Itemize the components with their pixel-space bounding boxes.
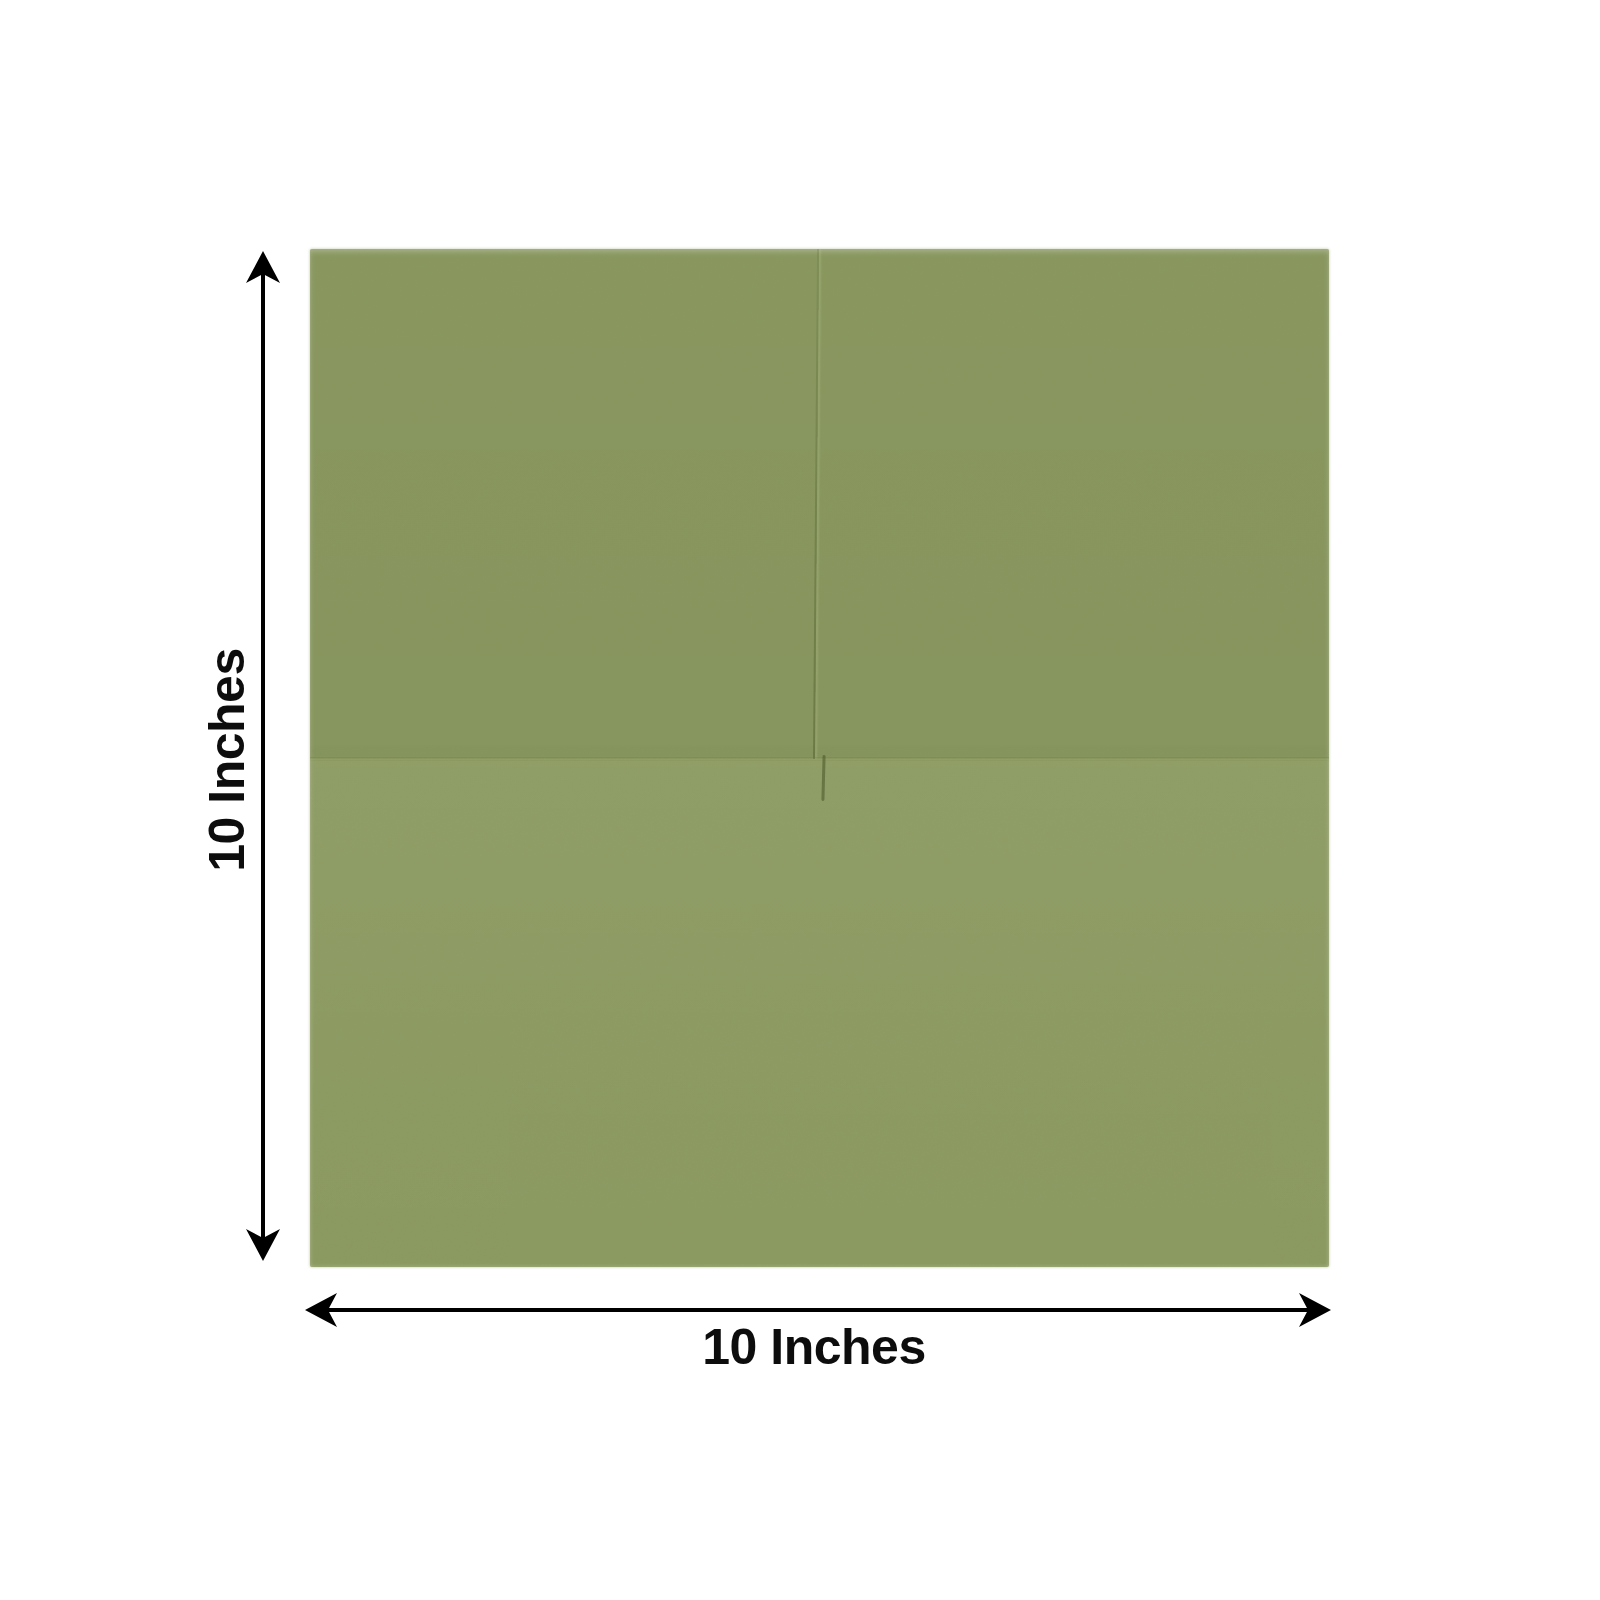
napkin-lower-half-shade [310, 761, 1329, 1267]
napkin-upper-half-shade [310, 249, 1329, 758]
product-dimension-diagram: 10 Inches 10 Inches [0, 0, 1600, 1600]
fold-crease-horizontal [310, 757, 1329, 760]
width-dimension-label: 10 Inches [702, 1318, 925, 1376]
napkin-swatch [310, 249, 1329, 1267]
height-dimension-label: 10 Inches [198, 648, 256, 871]
